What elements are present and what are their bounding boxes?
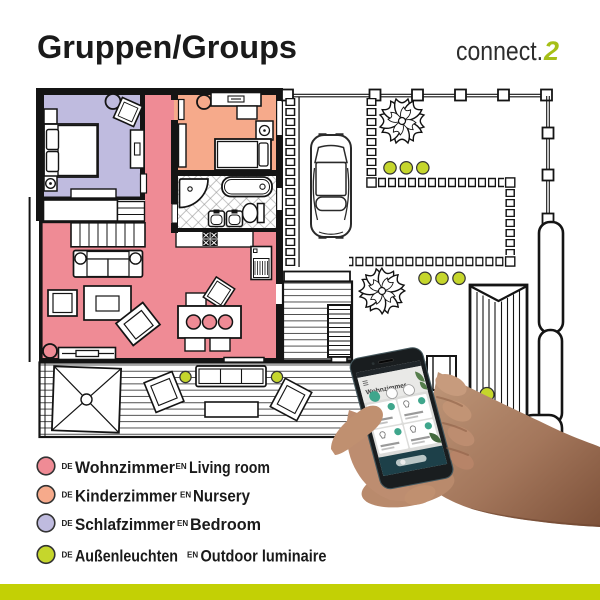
svg-text:connect.: connect. bbox=[456, 36, 543, 66]
svg-text:Gruppen/Groups: Gruppen/Groups bbox=[37, 29, 297, 65]
svg-text:DE: DE bbox=[62, 491, 74, 500]
svg-text:EN: EN bbox=[187, 551, 198, 560]
svg-text:2: 2 bbox=[543, 36, 559, 66]
svg-text:Wohnzimmer: Wohnzimmer bbox=[75, 458, 175, 477]
svg-text:Schlafzimmer: Schlafzimmer bbox=[75, 515, 175, 534]
svg-text:Outdoor luminaire: Outdoor luminaire bbox=[201, 547, 327, 566]
svg-text:Living room: Living room bbox=[189, 458, 270, 477]
svg-text:EN: EN bbox=[176, 462, 187, 471]
svg-text:Außenleuchten: Außenleuchten bbox=[75, 547, 178, 566]
svg-text:DE: DE bbox=[62, 462, 74, 471]
svg-text:Bedroom: Bedroom bbox=[190, 515, 261, 534]
svg-text:DE: DE bbox=[62, 519, 74, 528]
svg-text:Kinderzimmer: Kinderzimmer bbox=[75, 487, 177, 506]
svg-text:DE: DE bbox=[62, 551, 74, 560]
svg-text:EN: EN bbox=[177, 519, 188, 528]
svg-text:EN: EN bbox=[180, 491, 191, 500]
svg-text:Nursery: Nursery bbox=[193, 487, 250, 506]
